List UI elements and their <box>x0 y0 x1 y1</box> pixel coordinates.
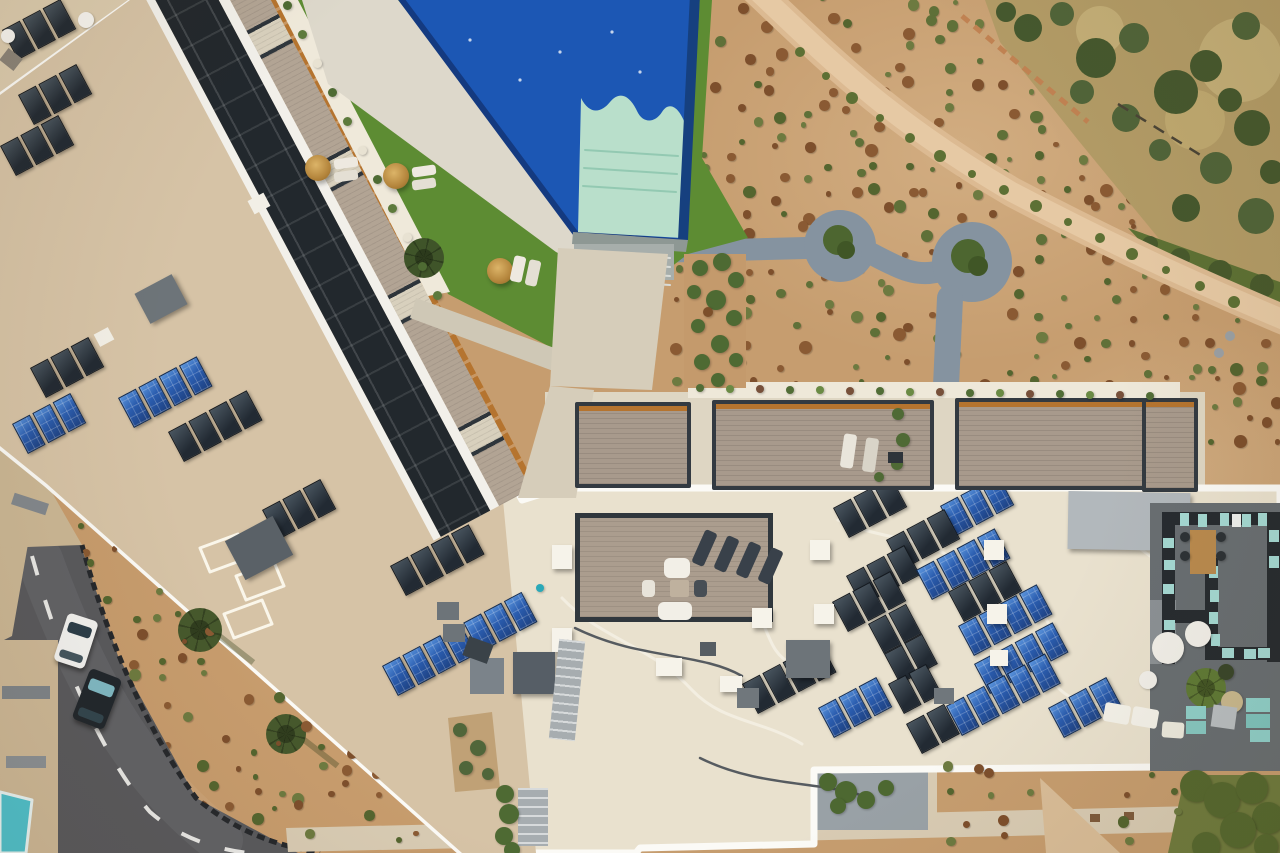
young-plant <box>1125 837 1133 845</box>
young-plant <box>1174 808 1181 815</box>
aerial-photo-resort <box>0 0 1280 853</box>
planted-strip-south <box>0 0 1280 853</box>
young-plant <box>1171 788 1178 795</box>
young-plant <box>1124 792 1130 798</box>
roof-objects-layer <box>0 0 1280 853</box>
young-plant <box>1149 772 1155 778</box>
young-plant <box>1118 816 1129 827</box>
